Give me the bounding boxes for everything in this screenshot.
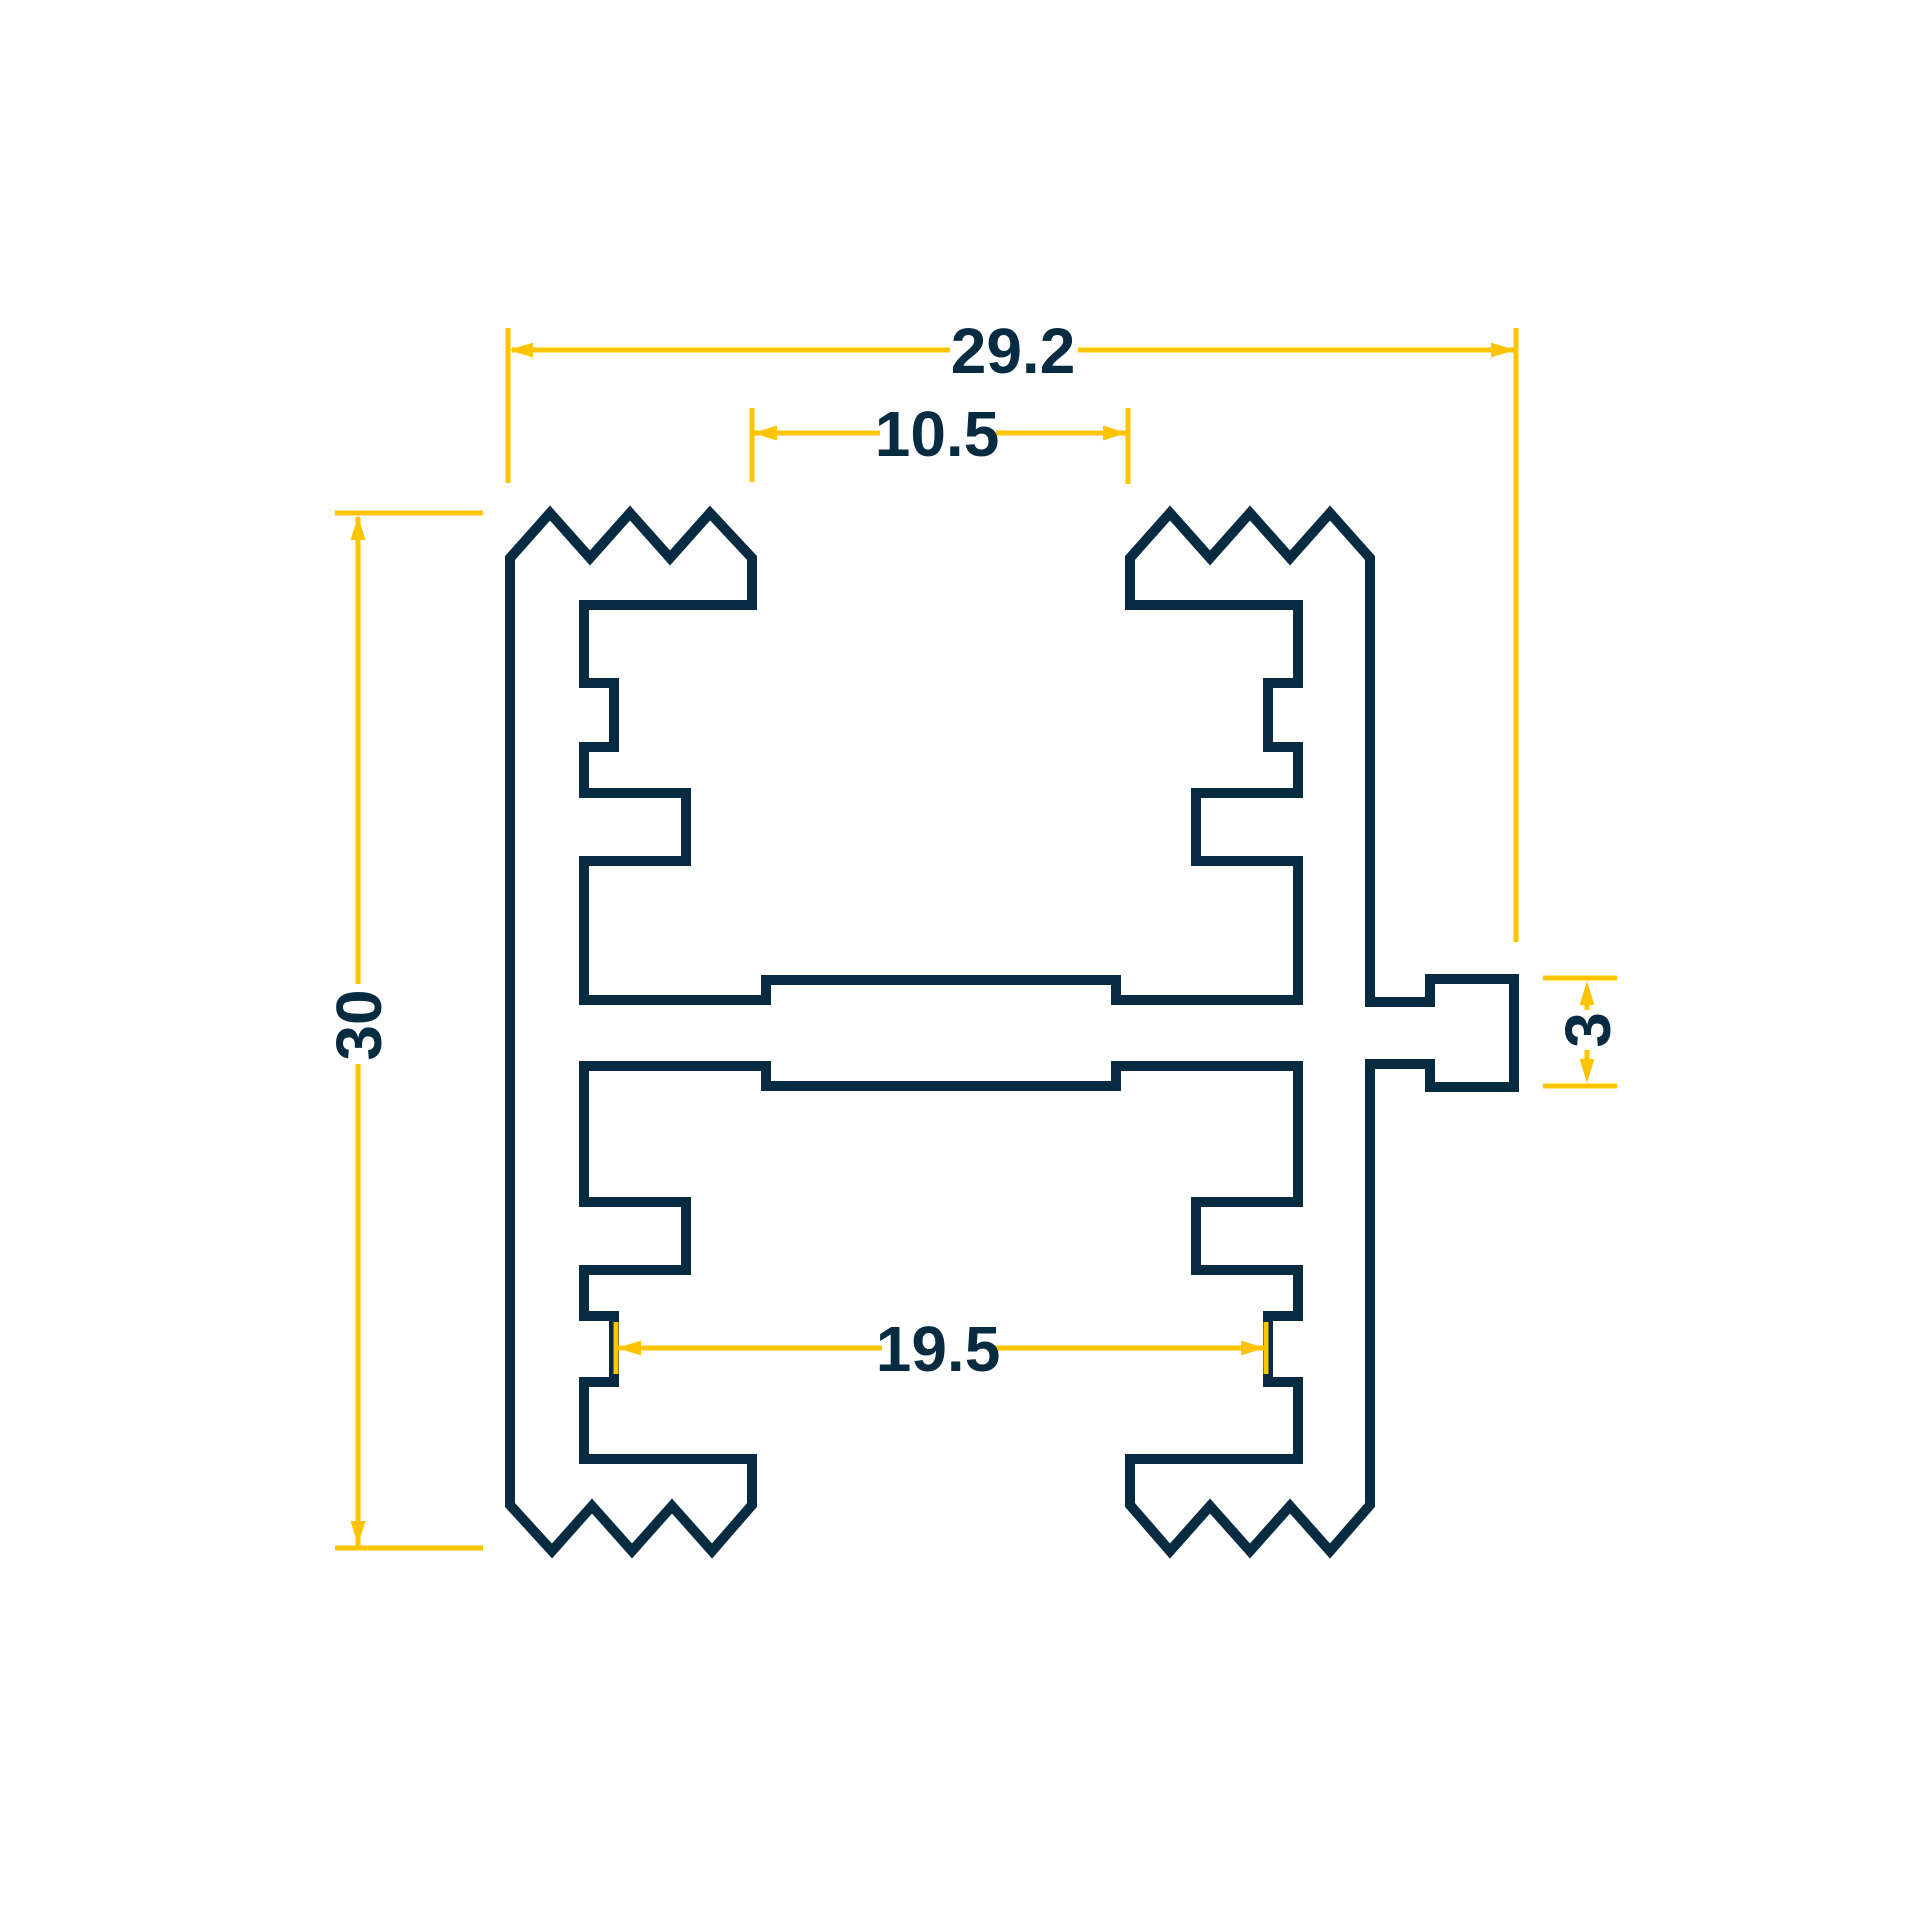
profile-cross-section-drawing: 29.2 10.5 30 3 19.5 <box>0 0 1920 1920</box>
profile-geometry <box>510 513 1514 1551</box>
dim-top-opening-label: 10.5 <box>875 398 1000 470</box>
technical-drawing-canvas: 29.2 10.5 30 3 19.5 <box>0 0 1920 1920</box>
arrow-left-icon <box>509 343 533 358</box>
dim-tab-height-label: 3 <box>1552 1012 1624 1048</box>
dim-total-width-label: 29.2 <box>951 315 1076 387</box>
arrow-right-icon <box>1103 426 1127 441</box>
extrusion-profile-outline <box>510 513 1514 1551</box>
dim-total-height-label: 30 <box>323 989 395 1060</box>
dimension-labels: 29.2 10.5 30 3 19.5 <box>323 315 1624 1385</box>
arrow-right-icon <box>1491 343 1515 358</box>
arrow-up-icon <box>1580 981 1595 1005</box>
arrow-left-icon <box>753 426 777 441</box>
arrow-down-icon <box>1580 1059 1595 1083</box>
arrow-right-icon <box>1241 1341 1265 1356</box>
arrow-up-icon <box>351 516 366 540</box>
arrow-left-icon <box>617 1341 641 1356</box>
arrow-down-icon <box>351 1521 366 1545</box>
dim-inner-slot-label: 19.5 <box>876 1313 1001 1385</box>
dim-total-width-lines <box>508 328 1516 942</box>
